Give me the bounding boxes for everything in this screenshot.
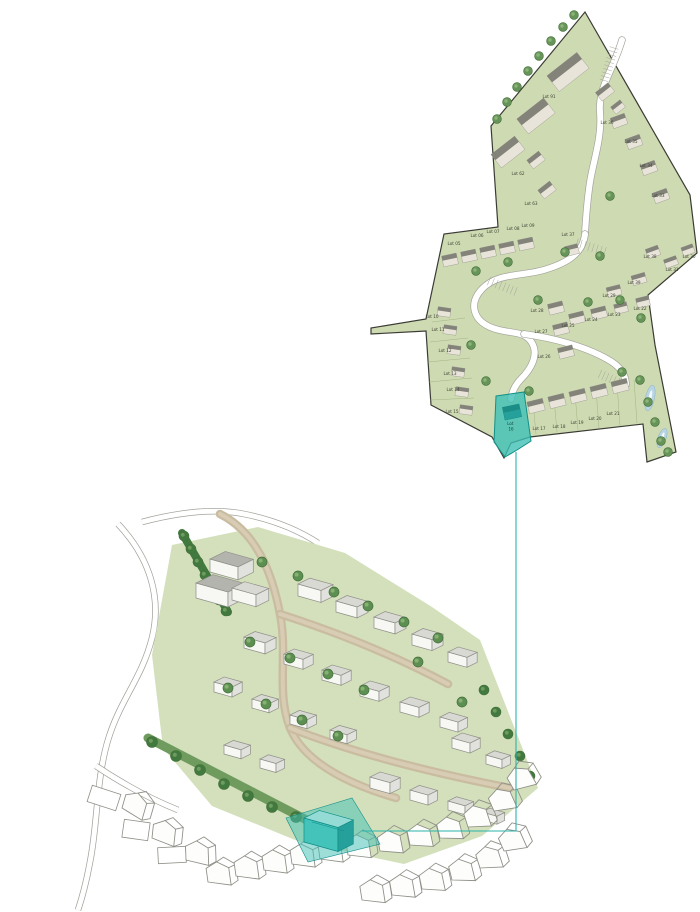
tree-highlight xyxy=(571,12,574,15)
tree-highlight xyxy=(299,717,303,721)
tree-highlight xyxy=(665,449,668,452)
hedge-tree-highlight xyxy=(221,781,225,785)
lot-label: Lot 15 xyxy=(445,409,458,414)
lot-label: Lot 39 xyxy=(627,280,640,285)
site-plan-figure: Lot 16 Lot 91Lot 36Lot 35Lot 34Lot 33Lot… xyxy=(0,0,700,912)
tree-highlight xyxy=(645,399,648,402)
tree-highlight xyxy=(652,419,655,422)
tree-highlight xyxy=(325,671,329,675)
context-road xyxy=(78,524,155,910)
context-building-outline xyxy=(122,819,150,840)
tree-highlight xyxy=(526,388,529,391)
site-plan-view: Lot 16 Lot 91Lot 36Lot 35Lot 34Lot 33Lot… xyxy=(371,11,697,462)
lot-label: Lot 38 xyxy=(643,254,656,259)
tree-highlight xyxy=(638,315,641,318)
tree-highlight xyxy=(637,377,640,380)
lot-label: Lot 20 xyxy=(588,416,601,421)
tree-highlight xyxy=(365,603,369,607)
rowhouse-body xyxy=(151,819,176,846)
tree-highlight xyxy=(505,259,508,262)
lot-label: Lot 12 xyxy=(438,348,451,353)
tree-highlight xyxy=(335,733,339,737)
lot-label: Lot 25 xyxy=(561,323,574,328)
tree-highlight xyxy=(361,687,365,691)
context-building-outline xyxy=(158,846,187,863)
masterplan-svg: Lot 16 Lot 91Lot 36Lot 35Lot 34Lot 33Lot… xyxy=(0,0,700,912)
lot-label: Lot 14 xyxy=(446,387,459,392)
tree-highlight xyxy=(658,438,661,441)
hedge-tree-highlight xyxy=(245,793,249,797)
tree-highlight xyxy=(562,249,565,252)
tree-highlight xyxy=(295,573,299,577)
tree-highlight xyxy=(525,68,528,71)
hedge-tree-highlight xyxy=(269,804,273,808)
plan-house xyxy=(443,325,457,336)
tree-highlight xyxy=(585,299,588,302)
lot-label: Lot 36 xyxy=(600,120,613,125)
lot-label: Lot 18 xyxy=(552,424,565,429)
rowhouse-body xyxy=(389,873,415,902)
tree-highlight xyxy=(263,701,267,705)
tree-highlight xyxy=(401,619,405,623)
hedge-tree-highlight xyxy=(149,739,153,743)
rowhouse-body xyxy=(474,843,503,874)
tree-highlight xyxy=(483,378,486,381)
lot-label: Lot 22 xyxy=(633,306,646,311)
hedge-tree-highlight xyxy=(195,559,199,563)
context-building-outline xyxy=(87,785,121,810)
lot-label: Lot 29 xyxy=(602,293,615,298)
tree-highlight xyxy=(536,53,539,56)
tree-highlight xyxy=(225,685,229,689)
hedge-tree-highlight xyxy=(173,753,177,757)
outline-rowhouse xyxy=(205,856,239,889)
outline-rowhouse xyxy=(358,873,392,906)
tree-highlight xyxy=(560,24,563,27)
hedge-tree-highlight xyxy=(223,608,227,612)
tree-highlight xyxy=(468,342,471,345)
tree-highlight xyxy=(535,297,538,300)
lot-label: Lot 07 xyxy=(486,229,499,234)
hedge-tree-highlight xyxy=(188,546,192,550)
lot-label: Lot 28 xyxy=(530,308,543,313)
rowhouse-body xyxy=(233,854,259,882)
lot-label: Lot 24 xyxy=(584,317,597,322)
lot-label: Lot 33 xyxy=(651,193,664,198)
lot-label: Lot 27 xyxy=(534,329,547,334)
lot-label: Lot 63 xyxy=(524,201,537,206)
outline-rowhouse xyxy=(151,816,184,848)
tree-highlight xyxy=(597,253,600,256)
hedge-tree-highlight xyxy=(517,753,521,757)
lot-label: Lot 05 xyxy=(447,241,460,246)
lot-label: Lot 06 xyxy=(470,233,483,238)
tree-highlight xyxy=(247,639,251,643)
highlighted-lot-plan: Lot 16 xyxy=(494,392,531,457)
lot-label: Lot 17 xyxy=(532,426,545,431)
tree-highlight xyxy=(473,268,476,271)
rowhouse-body xyxy=(205,860,231,888)
outline-rowhouse xyxy=(495,818,534,856)
lot-label: Lot 37 xyxy=(561,232,574,237)
tree-highlight xyxy=(548,38,551,41)
lot-label: Lot 31 xyxy=(665,267,678,272)
lot-label: Lot 11 xyxy=(431,327,444,332)
lot-label: Lot 91 xyxy=(542,94,555,99)
rowhouse-body xyxy=(359,878,385,906)
tree-highlight xyxy=(435,635,439,639)
lot-label: Lot 21 xyxy=(606,411,619,416)
tree-highlight xyxy=(504,99,507,102)
lot-label: Lot 09 xyxy=(521,223,534,228)
outline-rowhouse xyxy=(417,861,452,895)
lot-label: Lot 34 xyxy=(639,163,652,168)
iso-3d-view xyxy=(78,511,543,910)
hedge-tree-highlight xyxy=(197,767,201,771)
rowhouse-body xyxy=(261,848,287,876)
hedge-tree-highlight xyxy=(505,731,509,735)
tree-highlight xyxy=(619,369,622,372)
lot-label: Lot 35 xyxy=(624,139,637,144)
hedge-tree-highlight xyxy=(481,687,485,691)
tree-highlight xyxy=(459,699,463,703)
hedge-tree-highlight xyxy=(181,533,185,537)
lot-label: Lot 13 xyxy=(443,371,456,376)
plan-house xyxy=(459,405,473,416)
lot-label: Lot 30 xyxy=(682,254,695,259)
tree-highlight xyxy=(415,659,419,663)
lot-label: Lot 62 xyxy=(511,171,524,176)
rowhouse-body xyxy=(185,840,208,866)
tree-highlight xyxy=(259,559,263,563)
hedge-tree-highlight xyxy=(493,709,497,713)
lot-label: Lot 19 xyxy=(570,420,583,425)
tree-highlight xyxy=(287,655,291,659)
rowhouse-body xyxy=(418,866,445,895)
tree-highlight xyxy=(607,193,610,196)
tree-highlight xyxy=(617,297,620,300)
tree-highlight xyxy=(494,116,497,119)
lot-label: Lot 10 xyxy=(425,314,438,319)
tree-highlight xyxy=(331,589,335,593)
lot-label: Lot 08 xyxy=(506,226,519,231)
plan-house xyxy=(437,307,451,318)
outline-rowhouse xyxy=(388,868,423,902)
outline-rowhouse xyxy=(185,836,216,866)
hedge-tree-highlight xyxy=(202,572,206,576)
lot-label: Lot 23 xyxy=(607,312,620,317)
rowhouse-body xyxy=(447,856,475,886)
tree-highlight xyxy=(514,84,517,87)
lot-label: Lot 26 xyxy=(537,354,550,359)
